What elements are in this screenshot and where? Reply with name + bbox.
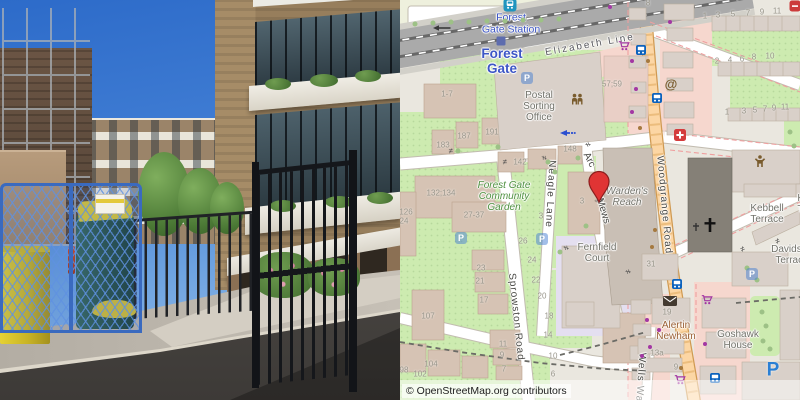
- parking-icon: P: [536, 233, 548, 245]
- house-number-label: 9: [674, 364, 678, 373]
- shop-dot-icon: [648, 345, 652, 349]
- house-number-label: 24: [400, 218, 408, 227]
- tree-icon: [557, 17, 562, 22]
- house-number-label: 9: [500, 352, 504, 361]
- house-number-label: 31: [647, 261, 656, 270]
- poi-dot-icon: [638, 126, 642, 130]
- clinic-icon: [674, 129, 686, 141]
- gate-post: [252, 162, 259, 388]
- house-number-label: 183: [436, 142, 449, 151]
- tree-icon: [584, 224, 589, 229]
- house-number-label: 24: [528, 257, 537, 266]
- house-number-label: 14: [544, 332, 553, 341]
- parking-icon: P: [767, 361, 780, 380]
- parking-icon: P: [455, 232, 467, 244]
- house-number-label: 142: [513, 159, 526, 168]
- house-number-label: 3: [742, 108, 746, 117]
- davidson-terrace-label: DavidsonTerrace: [771, 244, 800, 266]
- house-number-label: 17: [480, 297, 489, 306]
- house-number-label: 11: [499, 341, 507, 350]
- tree-icon: [792, 144, 797, 149]
- railway-station-icon: [504, 0, 517, 12]
- street-photo-panel: [0, 0, 400, 400]
- poi-dot-icon: [646, 59, 650, 63]
- shop-dot-icon: [668, 20, 672, 24]
- house-number-label: 104: [424, 361, 437, 370]
- warning-sign: [95, 194, 125, 214]
- tree-icon: [467, 20, 472, 25]
- bus-stop-icon: [672, 279, 682, 289]
- house-number-label: 7: [502, 366, 506, 375]
- house-number-label: 21: [476, 278, 485, 287]
- shop-dot-icon: [630, 110, 634, 114]
- gate-icon: ≠: [739, 245, 747, 255]
- station-building-icon: [497, 37, 506, 46]
- balcony-plant: [265, 78, 291, 90]
- house-number-label: 27-37: [464, 212, 484, 221]
- house-number-label: 6: [740, 56, 744, 65]
- gate-icon: ≠: [503, 159, 507, 168]
- goshawk-house-label: GoshawkHouse: [717, 329, 759, 351]
- house-number-label: 13a: [650, 350, 663, 359]
- post-office-icon: [663, 296, 677, 306]
- house-number-label: 1: [725, 109, 729, 118]
- poi-dot-icon: [653, 228, 657, 232]
- house-number-label: 9: [772, 105, 776, 114]
- house-number-label: 22: [532, 277, 541, 286]
- house-number-label: 132;134: [427, 190, 456, 199]
- wardens-reach-label: Warden'sReach: [606, 186, 648, 208]
- tree-icon: [413, 22, 418, 27]
- shop-dot-icon: [640, 354, 644, 358]
- tree-icon: [788, 130, 793, 135]
- shop-dot-icon: [608, 5, 612, 9]
- place-name-label: ForestGate: [481, 46, 522, 76]
- tree-icon: [496, 145, 501, 150]
- internet-cafe-icon: @: [665, 78, 678, 91]
- house-number-label: 8: [646, 0, 650, 8]
- shop-dot-icon: [703, 342, 707, 346]
- house-number-label: 3: [580, 198, 584, 207]
- community-centre-icon: [754, 155, 766, 167]
- shop-dot-icon: [634, 87, 638, 91]
- house-number-label: 57;59: [602, 81, 622, 90]
- house-number-label: 11: [781, 104, 789, 113]
- street-name-label: Sprowston Road: [506, 273, 526, 362]
- house-number-label: 2: [715, 58, 719, 67]
- construction-fence: [0, 183, 142, 333]
- house-number-label: 19: [663, 309, 672, 318]
- house-number-label: 6: [551, 371, 555, 380]
- shop-dot-icon: [657, 328, 661, 332]
- house-number-label: 9: [760, 9, 764, 18]
- oneway-arrow-icon: [433, 25, 451, 32]
- tree-icon: [760, 310, 765, 315]
- house-number-label: 18: [545, 313, 554, 322]
- gate-icon: ≠: [582, 141, 592, 149]
- gate-icon: ≠: [622, 268, 632, 275]
- supermarket-icon: [618, 41, 630, 52]
- house-number-label: 5: [753, 107, 757, 116]
- gate-post: [349, 150, 357, 392]
- bus-stop-icon: [636, 45, 646, 55]
- house-number-label: 4: [728, 57, 732, 66]
- house-number-label: 98: [400, 367, 408, 376]
- poi-dot-icon: [679, 366, 683, 370]
- parking-icon: P: [746, 268, 758, 280]
- house-number-label: 1: [703, 13, 707, 22]
- balcony-plant: [367, 192, 393, 204]
- house-number-label: 23: [477, 265, 486, 274]
- parking-icon: P: [521, 72, 533, 84]
- tree-icon: [456, 149, 461, 154]
- house-number-label: 187: [457, 133, 470, 142]
- tree-icon: [761, 339, 766, 344]
- map-panel[interactable]: Elizabeth LineWoodgrange RoadNeagle Lane…: [400, 0, 800, 400]
- house-number-label: 191: [485, 129, 498, 138]
- bus-stop-icon: [652, 93, 662, 103]
- oneway-arrow-icon: [560, 130, 576, 137]
- station-name-label: ForestGate Station: [482, 12, 540, 36]
- poi-icon: [790, 1, 800, 12]
- tree-icon: [539, 18, 544, 23]
- tree-icon: [553, 170, 558, 175]
- tree-icon: [764, 324, 769, 329]
- metal-gate: [257, 160, 353, 385]
- street-name-label: Woodgrange Road: [654, 155, 674, 254]
- tree-icon: [546, 160, 551, 165]
- church-cross-icon: [704, 218, 717, 233]
- screenshot-root: Elizabeth LineWoodgrange RoadNeagle Lane…: [0, 0, 800, 400]
- tree-icon: [503, 19, 508, 24]
- community-garden-label: Forest GateCommunityGarden: [478, 180, 531, 214]
- memorial-cross-icon: [693, 223, 700, 232]
- alertin-newham-label: AlertinNewham: [656, 320, 695, 342]
- house-number-label: 7: [763, 106, 767, 115]
- house-number-label: 148: [563, 146, 576, 155]
- house-number-label: 10: [549, 353, 558, 362]
- house-number-label: 11: [773, 8, 781, 17]
- house-number-label: 3: [716, 12, 720, 21]
- map-attribution[interactable]: © OpenStreetMap.org contributors: [402, 384, 571, 398]
- house-number-label: 5: [731, 11, 735, 20]
- fernfield-court-label: FernfieldCourt: [578, 242, 617, 264]
- house-number-label: 102: [413, 371, 426, 380]
- map-marker-pin: [586, 169, 612, 203]
- shop-dot-icon: [645, 318, 649, 322]
- tree-icon: [485, 19, 490, 24]
- house-number-label: 10: [766, 53, 775, 62]
- house-number-label: 1-7: [441, 91, 453, 100]
- house-number-label: 7: [746, 10, 750, 19]
- balcony-plant: [310, 74, 338, 87]
- tree-icon: [768, 347, 773, 352]
- street-name-label: Arc: [581, 151, 598, 169]
- house-number-label: 20: [538, 293, 547, 302]
- supermarket-icon: [701, 295, 713, 306]
- poi-dot-icon: [650, 245, 654, 249]
- house-number-label: 3: [539, 213, 543, 222]
- shop-dot-icon: [630, 59, 634, 63]
- balcony-plant: [355, 70, 381, 82]
- tree-icon: [576, 156, 581, 161]
- tree-icon: [558, 250, 563, 255]
- community-icon: [570, 94, 584, 105]
- house-number-label: 107: [421, 313, 434, 322]
- gate-icon: ≠: [449, 148, 453, 157]
- postal-sorting-office-label: PostalSortingOffice: [523, 90, 555, 124]
- house-number-label: 26: [519, 238, 528, 247]
- kebbell-terrace-label: KebbellTerrace: [750, 203, 783, 225]
- fence-post: [69, 186, 73, 330]
- house-number-label: 8: [752, 54, 756, 63]
- tree-icon: [521, 18, 526, 23]
